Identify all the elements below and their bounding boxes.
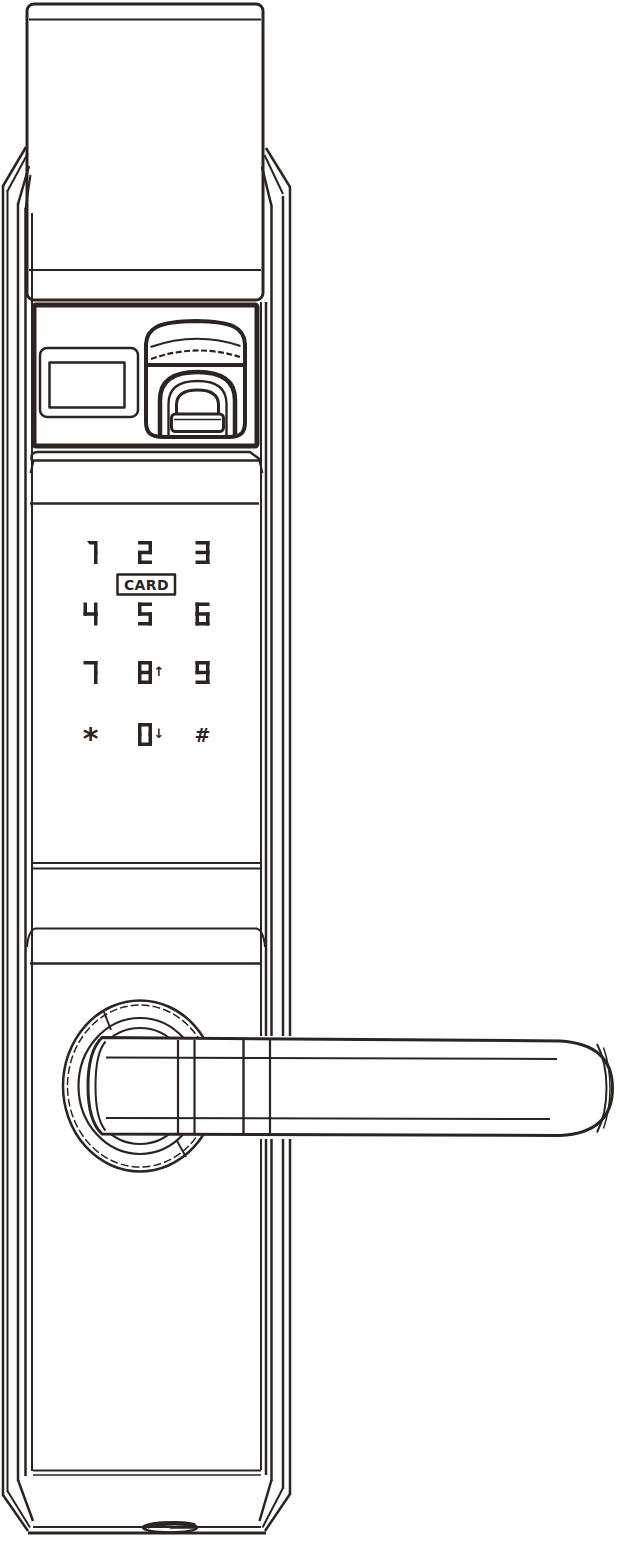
body-bevel-line	[8, 1491, 31, 1528]
up-arrow-icon: ↑	[154, 664, 165, 679]
lever-form-line	[106, 1118, 550, 1119]
digit-segment	[87, 541, 94, 545]
body-bevel-line	[18, 1480, 33, 1521]
digit-segment	[196, 671, 210, 675]
digit-segment	[196, 561, 210, 565]
cover-ridge-arc	[151, 339, 241, 347]
digit-segment	[94, 551, 98, 564]
keypad-key-4[interactable]	[84, 603, 98, 626]
digit-segment	[138, 671, 152, 675]
display-window	[40, 348, 138, 417]
digit-segment	[94, 612, 98, 625]
sensor-window-arch	[177, 390, 219, 415]
keypad-key-1[interactable]	[87, 541, 98, 564]
keypad-key-star[interactable]: *	[83, 721, 99, 756]
symbol-key-glyph: #	[195, 724, 211, 746]
card-label-text: CARD	[124, 577, 169, 593]
finger-rest-bar	[172, 414, 224, 432]
digit-segment	[94, 671, 98, 684]
top-cap	[27, 4, 263, 300]
module-lower-ledge	[31, 452, 263, 473]
card-reader-label[interactable]: CARD	[118, 575, 176, 595]
ledge-top	[32, 452, 262, 461]
keypad-key-2[interactable]	[138, 541, 152, 564]
keypad-key-8[interactable]: ↑	[138, 661, 164, 684]
digit-segment	[196, 681, 210, 685]
digit-segment	[138, 561, 152, 565]
keypad-key-7[interactable]	[84, 661, 98, 684]
keypad-key-5[interactable]	[138, 603, 152, 626]
digit-segment	[196, 622, 210, 626]
upper-module	[31, 305, 263, 473]
bottom-usb-port[interactable]	[143, 1523, 197, 1533]
keypad-key-hash[interactable]: #	[195, 724, 211, 746]
digit-segment	[138, 723, 142, 736]
top-cap-outline	[27, 4, 263, 300]
display-screen	[50, 363, 125, 408]
cover-ridge-arc-2	[151, 350, 240, 359]
down-arrow-icon: ↓	[154, 726, 165, 741]
smart-lock-technical-drawing: ↑*↓# CARD	[0, 0, 617, 1541]
keypad-key-6[interactable]	[196, 603, 210, 626]
door-handle-lever[interactable]	[88, 1038, 613, 1136]
keypad-panel: ↑*↓# CARD	[27, 504, 265, 964]
keypad-key-3[interactable]	[196, 541, 210, 564]
digit-segment	[138, 622, 152, 626]
fingerprint-reader[interactable]	[146, 321, 245, 437]
keypad-key-9[interactable]	[196, 661, 210, 684]
keypad-key-0[interactable]: ↓	[138, 723, 164, 746]
lever-outline	[88, 1038, 613, 1136]
symbol-key-glyph: *	[83, 721, 99, 756]
